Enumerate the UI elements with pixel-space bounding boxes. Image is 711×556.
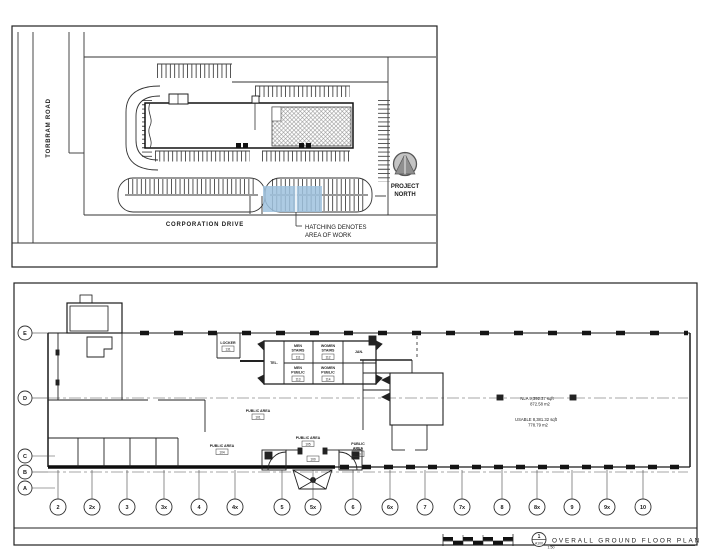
hatched-work-area: [272, 107, 351, 146]
room-label-locker: LOCKER: [220, 341, 236, 345]
road-label-torbram: TORBRAM ROAD: [46, 98, 52, 158]
nla-line1: NLA 9,392.37 sqft: [520, 396, 554, 401]
usable-line2: 778.79 m2: [528, 423, 548, 428]
room-label-men-stairs-1: MEN: [294, 344, 302, 348]
work-note-line2: AREA OF WORK: [305, 233, 351, 239]
grid-bubble-9: 9: [570, 505, 573, 511]
grid-bubble-5x: 5x: [310, 505, 317, 511]
room-label-jan: JAN.: [355, 350, 363, 354]
grid-bubble-E: E: [23, 331, 27, 337]
room-label-men-public-1: MEN: [294, 366, 302, 370]
room-tag-men-stairs: 111: [296, 355, 301, 359]
grid-bubble-2x: 2x: [89, 505, 96, 511]
room-label-women-stairs-2: STAIRS: [322, 349, 336, 353]
grid-bubble-3x: 3x: [161, 505, 168, 511]
grid-bubble-6: 6: [351, 505, 354, 511]
north-arrow-icon: [394, 153, 417, 176]
room-tag-locker: 131: [225, 347, 231, 351]
room-label-women-public-2: PUBLIC: [321, 371, 335, 375]
north-label-line1: PROJECT: [391, 184, 420, 190]
room-label-public-area-4-1: PUBLIC: [351, 442, 365, 446]
grid-bubble-C: C: [23, 454, 27, 460]
work-note-line1: HATCHING DENOTES: [305, 225, 367, 231]
plan-scale: 1:50: [548, 546, 555, 550]
room-tag-public-area-2: 104: [219, 450, 225, 454]
drawing-sheet: HATCHING DENOTES AREA OF WORK TORBRAM RO…: [0, 0, 711, 556]
grid-bubble-6x: 6x: [387, 505, 394, 511]
room-label-public-area-3: PUBLIC AREA: [296, 436, 321, 440]
room-tag-women-public: 114: [325, 377, 330, 381]
room-label-men-stairs-2: STAIRS: [292, 349, 306, 353]
room-label-public-area-1: PUBLIC AREA: [246, 409, 271, 413]
room-label-women-public-1: WOMEN: [321, 366, 336, 370]
room-label-public-area-2: PUBLIC AREA: [210, 444, 235, 448]
room-tag-men-public: 113: [295, 377, 300, 381]
room-tag-vestibule: 100: [310, 457, 316, 461]
detail-number: 1: [538, 534, 541, 540]
drawing-canvas: HATCHING DENOTES AREA OF WORK TORBRAM RO…: [0, 0, 711, 556]
nla-line2: 872.58 m2: [530, 402, 550, 407]
grid-bubble-7: 7: [423, 505, 426, 511]
plan-title: OVERALL GROUND FLOOR PLAN: [552, 538, 701, 545]
grid-bubble-D: D: [23, 396, 27, 402]
grid-bubble-5: 5: [280, 505, 283, 511]
room-label-public-area-4-2: AREA: [353, 447, 364, 451]
usable-line1: USABLE 8,381.32 sqft: [515, 417, 558, 422]
grid-bubble-7x: 7x: [459, 505, 466, 511]
grid-bubble-9x: 9x: [604, 505, 611, 511]
road-label-corporation: CORPORATION DRIVE: [166, 222, 244, 228]
room-tag-public-area-1: 101: [255, 415, 261, 419]
room-tag-public-area-3: 105: [305, 442, 311, 446]
room-tag-women-stairs: 112: [325, 355, 330, 359]
grid-bubble-10: 10: [640, 505, 646, 511]
room-label-men-public-2: PUBLIC: [291, 371, 305, 375]
work-area-highlight: [263, 186, 322, 212]
floor-plan-panel: LOCKER 131 MEN STAIRS 111 WOMEN STAIRS 1…: [14, 283, 701, 550]
grid-bubble-8: 8: [500, 505, 503, 511]
grid-bubble-A: A: [23, 486, 27, 492]
room-label-tel: TEL.: [270, 361, 278, 365]
sheet-number: A100: [535, 542, 543, 546]
north-label-line2: NORTH: [394, 192, 415, 198]
grid-bubble-B: B: [23, 470, 27, 476]
grid-bubble-8x: 8x: [534, 505, 541, 511]
site-plan-panel: HATCHING DENOTES AREA OF WORK TORBRAM RO…: [12, 26, 437, 267]
room-label-women-stairs-1: WOMEN: [321, 344, 336, 348]
grid-bubble-4x: 4x: [232, 505, 239, 511]
grid-bubble-2: 2: [56, 505, 59, 511]
room-tag-public-area-4: 103: [355, 452, 361, 456]
grid-bubble-3: 3: [125, 505, 128, 511]
